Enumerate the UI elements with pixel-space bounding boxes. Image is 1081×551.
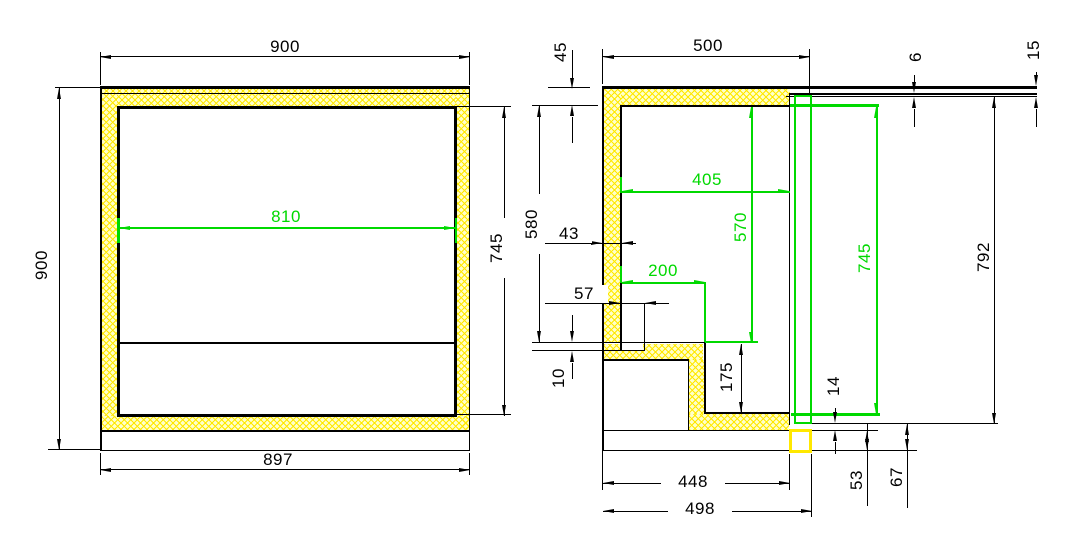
arrow (833, 412, 837, 423)
arrow (739, 344, 743, 355)
foot-block (789, 429, 812, 453)
arrow (444, 226, 455, 230)
dim-label: 570 (732, 197, 750, 257)
outer-top-line (100, 86, 470, 89)
door-frame-line (789, 95, 791, 425)
outer-bottom-line (100, 430, 470, 432)
arrow (749, 107, 753, 118)
dim-label: 580 (523, 194, 541, 254)
arrow (905, 424, 909, 435)
right-wall-hatch (456, 94, 469, 430)
outer-left-line (100, 86, 102, 432)
bottom-insulation-hatch (101, 416, 469, 430)
dim-label: 200 (635, 262, 691, 280)
dim-label: 57 (560, 285, 608, 303)
dim-label: 175 (718, 347, 736, 407)
top-insulation-hatch (101, 94, 469, 106)
dim-label: 900 (33, 235, 51, 295)
plinth-right-line (469, 432, 471, 451)
arrow (57, 88, 61, 99)
arrow (502, 107, 506, 118)
arrow (622, 189, 633, 193)
arrow (100, 468, 111, 472)
door-panel (794, 95, 812, 424)
bottom-insulation-hatch (689, 414, 789, 430)
outer-right-line (469, 86, 471, 432)
arrow (537, 106, 541, 117)
arrow (57, 439, 61, 450)
plinth-left-line (100, 432, 102, 451)
arrow (609, 301, 620, 305)
floor-front-line (704, 412, 790, 414)
dim-label: 405 (679, 171, 735, 189)
arrow (801, 509, 812, 513)
floor-insulation-hatch (604, 344, 703, 360)
dim-label: 448 (661, 473, 725, 491)
arrow (603, 55, 614, 59)
worktop-top-line (603, 86, 1037, 89)
arrow (778, 189, 789, 193)
dim-label: 792 (975, 227, 993, 287)
channel-right-line (644, 303, 645, 351)
arrow (645, 301, 656, 305)
arrow (874, 403, 878, 414)
arrow (905, 439, 909, 450)
arrow (1034, 97, 1038, 108)
step-front-line (704, 342, 706, 415)
dim-label: 498 (668, 500, 732, 518)
dim-label: 6 (907, 39, 925, 75)
bottom-line (602, 430, 813, 432)
inner-liner (117, 106, 457, 417)
arrow (459, 468, 470, 472)
arrow (874, 107, 878, 118)
door-gasket-top-line (790, 104, 879, 107)
arrow (1034, 75, 1038, 86)
arrow (502, 405, 506, 416)
arrow (992, 97, 996, 108)
arrow (622, 241, 633, 245)
arrow (603, 481, 614, 485)
arrow (912, 82, 916, 93)
arrow (739, 402, 743, 413)
dim-label: 900 (255, 38, 315, 56)
dim-label: 897 (248, 451, 308, 469)
step-top-line (532, 342, 705, 344)
arrow (833, 430, 837, 441)
arrow (603, 509, 614, 513)
rear-outer-line (602, 86, 604, 433)
dim-label: 15 (1025, 28, 1043, 72)
recess-top-line (604, 359, 689, 361)
arrow (537, 331, 541, 342)
worktop-bottom-line (100, 93, 470, 95)
arrow (100, 55, 111, 59)
dim-label: 53 (848, 458, 866, 502)
step-wall-hatch (689, 360, 704, 414)
rear-inner-line (620, 105, 622, 350)
left-wall-hatch (101, 94, 117, 430)
dim-label: 67 (888, 455, 906, 499)
shelf-line (120, 342, 454, 344)
technical-drawing-canvas: 900 900 810 745 (0, 0, 1081, 551)
dim-label: 45 (552, 30, 570, 74)
ceiling-line (621, 105, 790, 107)
worktop-bottom-line (789, 93, 1037, 95)
recess-right-line (688, 359, 690, 431)
arrow (912, 97, 916, 108)
arrow (570, 331, 574, 342)
arrow (570, 351, 574, 362)
arrow (622, 280, 633, 284)
arrow (570, 78, 574, 89)
dim-label: 500 (678, 37, 738, 55)
floor-line (602, 450, 917, 452)
arrow (992, 413, 996, 424)
arrow (570, 105, 574, 116)
channel-bottom-line (532, 350, 645, 352)
top-insulation-hatch (604, 89, 790, 105)
dim-label: 810 (255, 208, 317, 226)
arrow (591, 241, 602, 245)
dim-label: 745 (488, 218, 506, 278)
dim-label: 10 (550, 356, 568, 400)
dim-label: 14 (825, 364, 843, 408)
arrow (865, 439, 869, 450)
arrow (459, 55, 470, 59)
dim-label: 43 (546, 225, 592, 243)
dim-label: 745 (856, 228, 874, 288)
arrow (779, 481, 790, 485)
arrow (119, 226, 130, 230)
arrow (799, 55, 810, 59)
